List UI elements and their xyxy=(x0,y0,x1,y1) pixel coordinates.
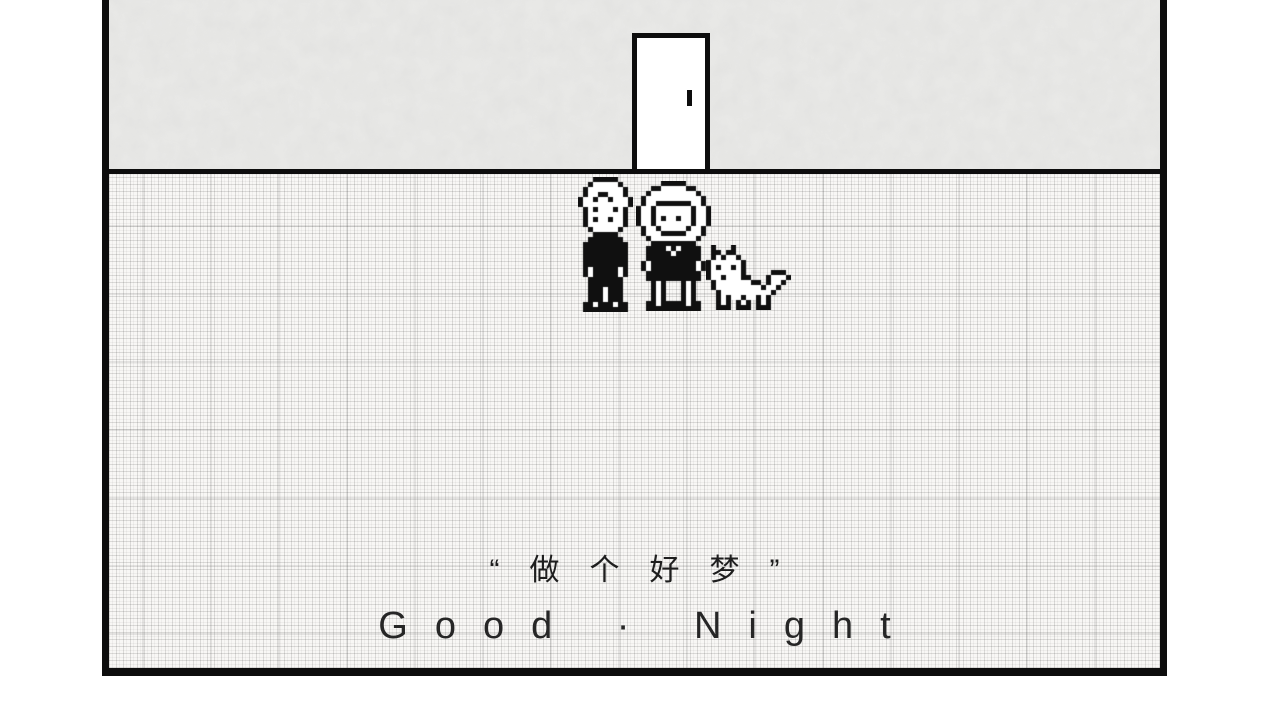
game-screen[interactable]: “做个好梦” Good · Night xyxy=(0,0,1280,720)
cat-sprite[interactable] xyxy=(706,245,791,310)
room-frame: “做个好梦” Good · Night xyxy=(102,0,1167,676)
wall xyxy=(109,0,1160,174)
girl-character-sprite[interactable] xyxy=(636,181,711,311)
plaid-floor xyxy=(109,174,1160,668)
boy-character-sprite[interactable] xyxy=(578,177,633,312)
door-handle-icon xyxy=(687,90,692,106)
caption-english: Good · Night xyxy=(109,603,1160,649)
door[interactable] xyxy=(632,33,710,169)
caption-chinese: “做个好梦” xyxy=(109,552,1160,590)
